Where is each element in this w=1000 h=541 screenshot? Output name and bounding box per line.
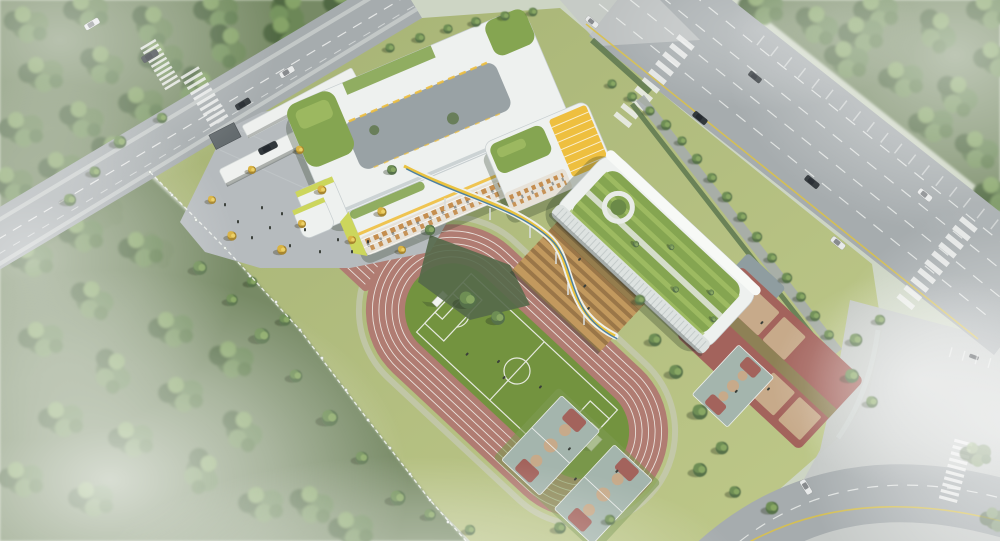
campus-scene (0, 0, 1000, 541)
aerial-rendering (0, 0, 1000, 541)
